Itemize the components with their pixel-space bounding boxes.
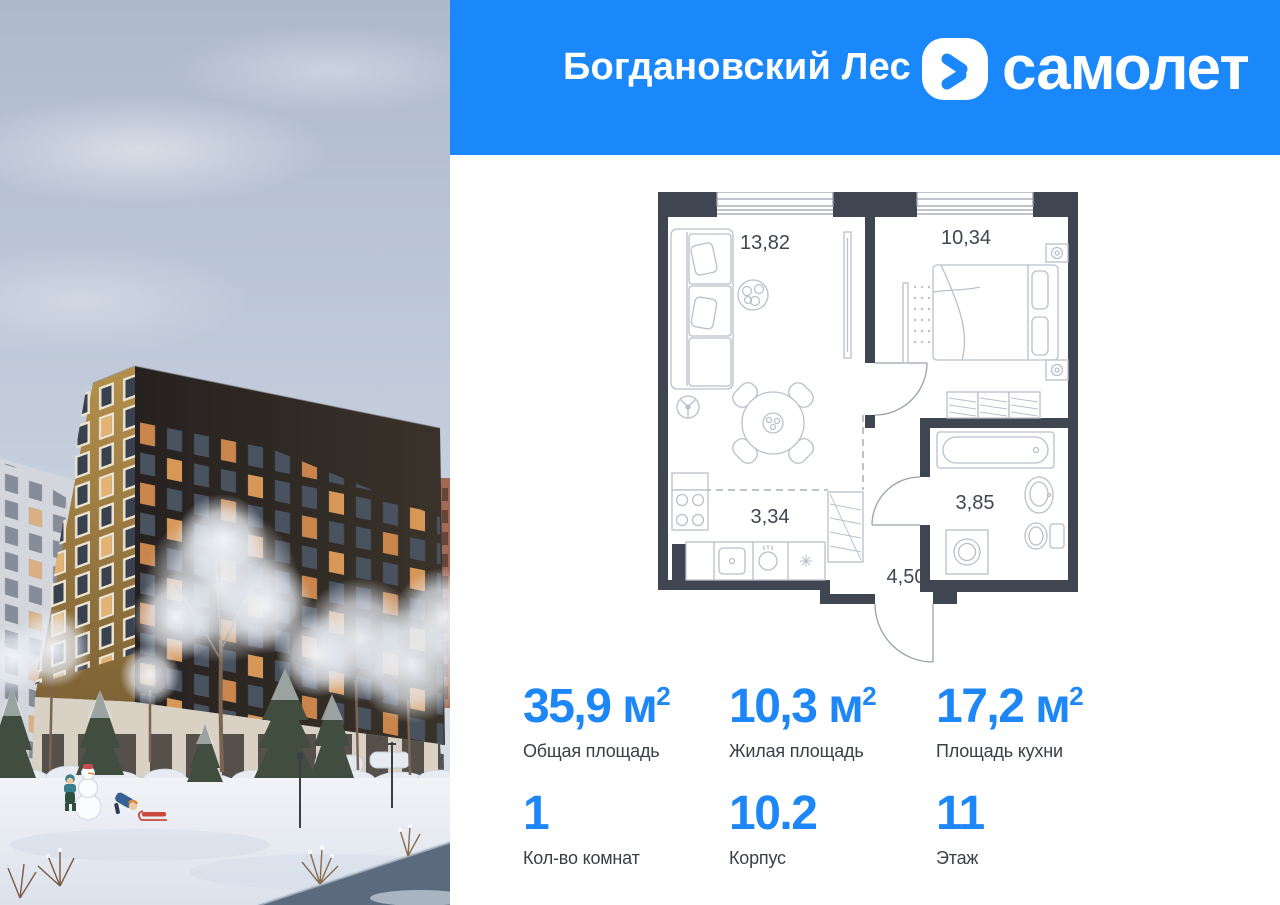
stat-floor: 11 Этаж bbox=[936, 790, 1136, 869]
stat-total-area: 35,9 м2 Общая площадь bbox=[523, 683, 723, 762]
stat-value: 1 bbox=[523, 790, 723, 838]
living-room-area-label: 13,82 bbox=[740, 232, 790, 254]
stat-value: 10,3 м2 bbox=[729, 683, 929, 731]
toilet bbox=[1025, 523, 1064, 549]
stat-label: Жилая площадь bbox=[729, 741, 929, 762]
samolet-logo-icon bbox=[922, 38, 988, 100]
bed bbox=[933, 265, 1058, 360]
stat-living-area: 10,3 м2 Жилая площадь bbox=[729, 683, 929, 762]
bathroom-area-label: 3,85 bbox=[956, 492, 995, 514]
bedroom-area-label: 10,34 bbox=[941, 227, 991, 249]
stat-label: Площадь кухни bbox=[936, 741, 1136, 762]
stat-rooms-count: 1 Кол-во комнат bbox=[523, 790, 723, 869]
bedroom-wardrobe bbox=[947, 392, 1040, 418]
tv-panel bbox=[844, 232, 851, 358]
stat-value: 17,2 м2 bbox=[936, 683, 1136, 731]
kitchen-area-label: 3,34 bbox=[751, 506, 790, 528]
kitchen-fixtures bbox=[672, 473, 825, 580]
header-banner: Богдановский Лес самолет bbox=[450, 0, 1280, 155]
project-photo bbox=[0, 0, 450, 905]
bathtub bbox=[937, 432, 1054, 468]
floor-plan-drawing: 13,82 10,34 3,34 3,85 4,50 bbox=[658, 192, 1078, 672]
stat-label: Этаж bbox=[936, 848, 1136, 869]
brand-name: самолет bbox=[1002, 38, 1249, 100]
hall-closet bbox=[828, 492, 863, 562]
stat-label: Кол-во комнат bbox=[523, 848, 723, 869]
sofa bbox=[671, 229, 733, 389]
stat-kitchen-area: 17,2 м2 Площадь кухни bbox=[936, 683, 1136, 762]
doors bbox=[872, 363, 933, 662]
stat-label: Корпус bbox=[729, 848, 929, 869]
project-title: Богдановский Лес bbox=[563, 46, 911, 89]
stat-label: Общая площадь bbox=[523, 741, 723, 762]
brand-logo: самолет bbox=[922, 38, 1249, 100]
bath-sink bbox=[1025, 477, 1053, 513]
dining-set bbox=[729, 379, 816, 466]
stat-value: 11 bbox=[936, 790, 1136, 838]
washing-machine bbox=[946, 530, 988, 574]
hallway-area-label: 4,50 bbox=[887, 566, 926, 588]
plant bbox=[738, 280, 768, 310]
listing-card: Богдановский Лес самолет bbox=[0, 0, 1280, 905]
stat-building: 10.2 Корпус bbox=[729, 790, 929, 869]
dresser bbox=[903, 283, 930, 363]
stat-value: 10.2 bbox=[729, 790, 929, 838]
winter-scene-illustration bbox=[0, 0, 450, 905]
floor-lamp bbox=[677, 396, 699, 418]
floor-plan: 13,82 10,34 3,34 3,85 4,50 bbox=[658, 192, 1078, 672]
stat-value: 35,9 м2 bbox=[523, 683, 723, 731]
